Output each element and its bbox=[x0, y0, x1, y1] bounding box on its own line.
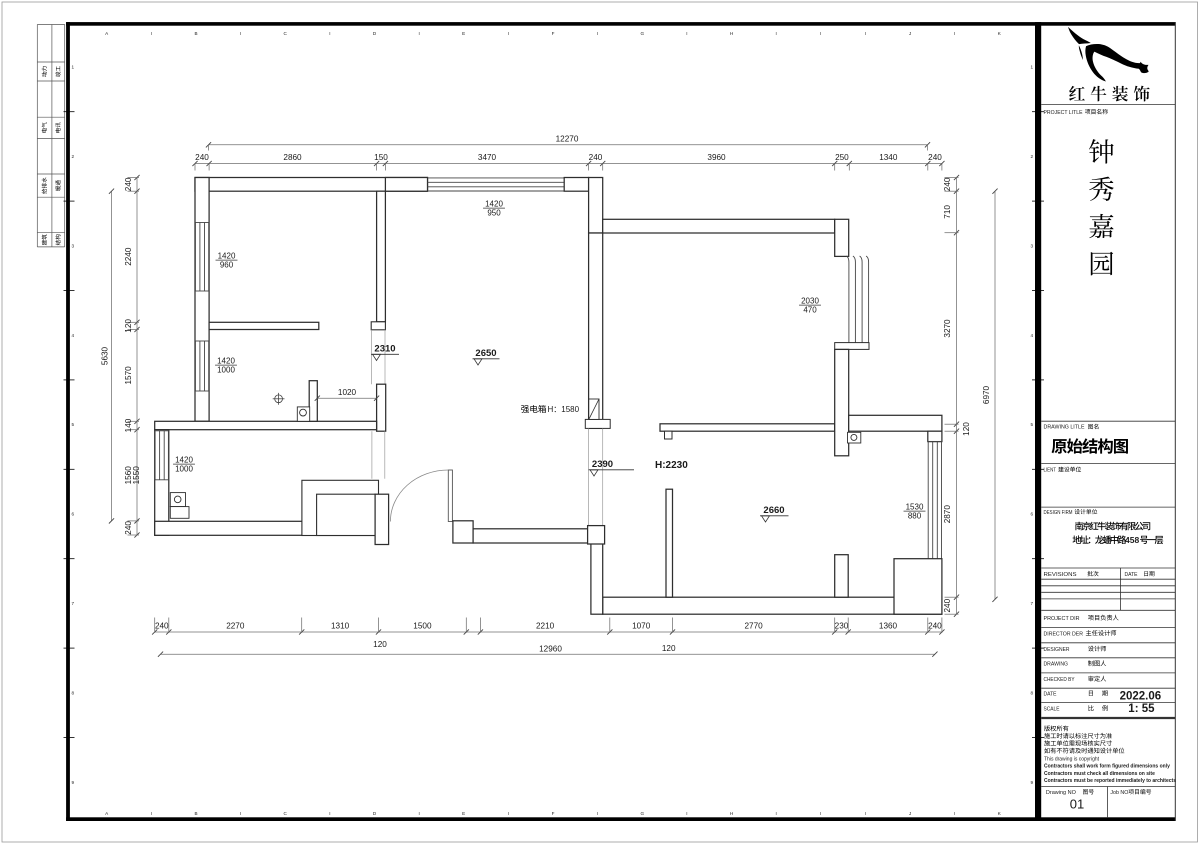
svg-text:2210: 2210 bbox=[536, 622, 555, 631]
svg-text:I: I bbox=[820, 811, 821, 816]
svg-text:4: 4 bbox=[1031, 333, 1034, 338]
svg-text:3: 3 bbox=[72, 243, 75, 248]
svg-text:DATE: DATE bbox=[1125, 572, 1138, 578]
svg-text:B: B bbox=[194, 31, 197, 36]
svg-text:3: 3 bbox=[1031, 243, 1034, 248]
svg-text:12270: 12270 bbox=[556, 135, 579, 144]
svg-text:240: 240 bbox=[928, 622, 942, 631]
svg-text:1070: 1070 bbox=[632, 622, 651, 631]
svg-text:240: 240 bbox=[195, 153, 209, 162]
svg-text:DRAWING LITLE: DRAWING LITLE bbox=[1044, 425, 1085, 431]
svg-text:240: 240 bbox=[928, 153, 942, 162]
svg-text:CHECKED BY: CHECKED BY bbox=[1044, 677, 1075, 683]
svg-text:E: E bbox=[462, 811, 465, 816]
svg-text:H: H bbox=[730, 811, 733, 816]
svg-text:2390: 2390 bbox=[592, 459, 613, 470]
svg-text:240: 240 bbox=[124, 521, 133, 535]
svg-text:1530: 1530 bbox=[906, 502, 924, 511]
svg-text:I: I bbox=[954, 811, 955, 816]
svg-text:Contractors must be reported i: Contractors must be reported immediately… bbox=[1044, 778, 1176, 784]
svg-text:REVISIONS: REVISIONS bbox=[1044, 572, 1077, 578]
svg-text:I: I bbox=[597, 811, 598, 816]
svg-text:I: I bbox=[686, 811, 687, 816]
svg-text:LIENT: LIENT bbox=[1044, 468, 1057, 474]
svg-text:I: I bbox=[418, 811, 419, 816]
svg-text:2660: 2660 bbox=[763, 505, 784, 516]
svg-text:I: I bbox=[865, 31, 866, 36]
svg-text:230: 230 bbox=[835, 622, 849, 631]
svg-text:DESIGNER: DESIGNER bbox=[1044, 647, 1070, 653]
svg-text:140: 140 bbox=[124, 418, 133, 432]
svg-text:7: 7 bbox=[1031, 601, 1034, 606]
svg-text:G: G bbox=[641, 31, 645, 36]
svg-text:I: I bbox=[686, 31, 687, 36]
svg-text:6: 6 bbox=[72, 512, 75, 517]
svg-text:H：1580: H：1580 bbox=[548, 405, 580, 414]
svg-text:150: 150 bbox=[374, 153, 388, 162]
svg-text:DATE: DATE bbox=[1044, 691, 1057, 697]
svg-text:3960: 3960 bbox=[707, 153, 726, 162]
svg-text:1000: 1000 bbox=[217, 365, 235, 374]
svg-text:880: 880 bbox=[908, 511, 922, 520]
svg-text:2: 2 bbox=[72, 154, 75, 159]
svg-text:Contractors must check all dim: Contractors must check all dimensions on… bbox=[1044, 771, 1155, 777]
svg-text:2860: 2860 bbox=[283, 153, 302, 162]
svg-text:240: 240 bbox=[124, 177, 133, 191]
svg-text:DESIGN FIRM: DESIGN FIRM bbox=[1044, 510, 1073, 516]
svg-text:2022.06: 2022.06 bbox=[1120, 690, 1162, 702]
svg-text:B: B bbox=[194, 811, 197, 816]
svg-text:I: I bbox=[776, 811, 777, 816]
svg-text:H: H bbox=[730, 31, 733, 36]
svg-text:I: I bbox=[240, 31, 241, 36]
svg-text:3270: 3270 bbox=[943, 319, 952, 338]
svg-text:1: 1 bbox=[1031, 65, 1034, 70]
svg-text:7: 7 bbox=[72, 601, 75, 606]
svg-text:3470: 3470 bbox=[478, 153, 497, 162]
svg-text:SCALE: SCALE bbox=[1044, 706, 1060, 712]
svg-text:F: F bbox=[552, 811, 555, 816]
svg-text:J: J bbox=[909, 31, 911, 36]
svg-text:1000: 1000 bbox=[175, 464, 193, 473]
svg-text:8: 8 bbox=[1031, 690, 1034, 695]
svg-text:950: 950 bbox=[487, 208, 501, 217]
svg-text:I: I bbox=[820, 31, 821, 36]
svg-text:Job NO: Job NO bbox=[1110, 790, 1129, 796]
svg-text:I: I bbox=[418, 31, 419, 36]
svg-text:960: 960 bbox=[220, 260, 234, 269]
svg-text:Drawing NO: Drawing NO bbox=[1046, 790, 1077, 796]
svg-text:1550: 1550 bbox=[132, 466, 141, 485]
svg-text:I: I bbox=[329, 31, 330, 36]
svg-text:120: 120 bbox=[373, 640, 387, 649]
svg-text:120: 120 bbox=[662, 644, 676, 653]
svg-text:1420: 1420 bbox=[485, 199, 503, 208]
svg-text:1360: 1360 bbox=[879, 622, 898, 631]
svg-text:I: I bbox=[508, 811, 509, 816]
svg-text:120: 120 bbox=[124, 319, 133, 333]
svg-text:2: 2 bbox=[1031, 154, 1034, 159]
svg-text:1020: 1020 bbox=[338, 388, 357, 397]
svg-text:E: E bbox=[462, 31, 465, 36]
svg-text:PROJECT LITLE: PROJECT LITLE bbox=[1044, 110, 1083, 116]
svg-text:240: 240 bbox=[589, 153, 603, 162]
svg-text:This drawing is copyright: This drawing is copyright bbox=[1044, 756, 1100, 762]
svg-text:PROJECT DIR: PROJECT DIR bbox=[1044, 616, 1080, 622]
svg-text:I: I bbox=[151, 811, 152, 816]
svg-text:I: I bbox=[329, 811, 330, 816]
svg-text:J: J bbox=[909, 811, 911, 816]
svg-text:120: 120 bbox=[962, 422, 971, 436]
svg-text:I: I bbox=[597, 31, 598, 36]
svg-text:1500: 1500 bbox=[413, 622, 432, 631]
svg-text:DIRECTOR DER: DIRECTOR DER bbox=[1044, 631, 1084, 637]
svg-text:5630: 5630 bbox=[101, 346, 110, 365]
svg-text:Contractors shall work form fi: Contractors shall work form figured dime… bbox=[1044, 764, 1170, 770]
svg-text:710: 710 bbox=[943, 205, 952, 219]
svg-text:1420: 1420 bbox=[218, 251, 236, 260]
svg-text:9: 9 bbox=[1031, 780, 1034, 785]
svg-text:250: 250 bbox=[835, 153, 849, 162]
svg-text:DRAWING: DRAWING bbox=[1044, 662, 1069, 668]
svg-text:F: F bbox=[552, 31, 555, 36]
svg-text:240: 240 bbox=[155, 622, 169, 631]
svg-text:240: 240 bbox=[943, 598, 952, 612]
svg-text:I: I bbox=[954, 31, 955, 36]
svg-text:2870: 2870 bbox=[943, 505, 952, 524]
svg-text:H:2230: H:2230 bbox=[655, 460, 688, 471]
svg-text:G: G bbox=[641, 811, 645, 816]
svg-text:12960: 12960 bbox=[539, 645, 562, 654]
svg-text:1310: 1310 bbox=[331, 622, 350, 631]
svg-text:5: 5 bbox=[1031, 422, 1034, 427]
svg-text:1420: 1420 bbox=[217, 356, 235, 365]
svg-text:2770: 2770 bbox=[744, 622, 763, 631]
svg-text:I: I bbox=[776, 31, 777, 36]
svg-text:2650: 2650 bbox=[475, 348, 496, 359]
svg-text:6: 6 bbox=[1031, 512, 1034, 517]
svg-text:I: I bbox=[240, 811, 241, 816]
svg-text:458: 458 bbox=[1125, 535, 1139, 545]
svg-text:240: 240 bbox=[943, 177, 952, 191]
svg-text:1: 55: 1: 55 bbox=[1128, 703, 1155, 715]
svg-text:6970: 6970 bbox=[982, 385, 991, 404]
svg-text:5: 5 bbox=[72, 422, 75, 427]
svg-text:4: 4 bbox=[72, 333, 75, 338]
svg-text:01: 01 bbox=[1070, 796, 1084, 811]
svg-text:1420: 1420 bbox=[175, 455, 193, 464]
svg-text:I: I bbox=[151, 31, 152, 36]
svg-text:2030: 2030 bbox=[801, 296, 819, 305]
svg-text:1340: 1340 bbox=[879, 153, 898, 162]
svg-text:8: 8 bbox=[72, 690, 75, 695]
svg-text:I: I bbox=[508, 31, 509, 36]
svg-text:2240: 2240 bbox=[124, 247, 133, 266]
svg-text:2310: 2310 bbox=[374, 344, 395, 355]
svg-text:I: I bbox=[865, 811, 866, 816]
svg-text:470: 470 bbox=[803, 305, 817, 314]
svg-text:9: 9 bbox=[72, 780, 75, 785]
svg-text:2270: 2270 bbox=[226, 622, 245, 631]
svg-text:1570: 1570 bbox=[124, 366, 133, 385]
svg-text:1: 1 bbox=[72, 65, 75, 70]
